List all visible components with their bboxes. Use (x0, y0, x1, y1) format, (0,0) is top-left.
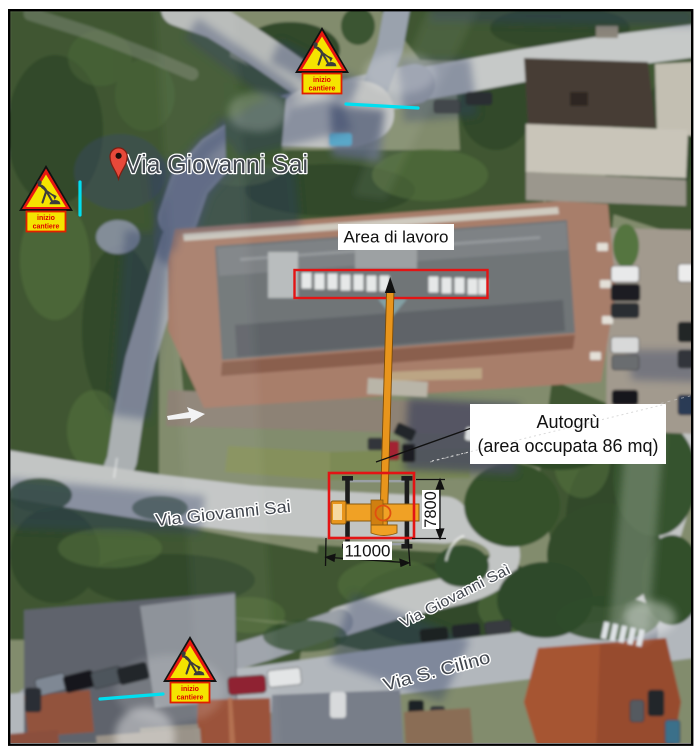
svg-text:Via Giovanni Sai: Via Giovanni Sai (125, 149, 308, 179)
svg-text:11000: 11000 (344, 542, 390, 561)
svg-text:(area occupata 86 mq): (area occupata 86 mq) (477, 436, 658, 456)
svg-text:Autogrù: Autogrù (536, 412, 599, 432)
svg-text:7800: 7800 (422, 491, 440, 528)
svg-text:Area di lavoro: Area di lavoro (344, 228, 449, 247)
